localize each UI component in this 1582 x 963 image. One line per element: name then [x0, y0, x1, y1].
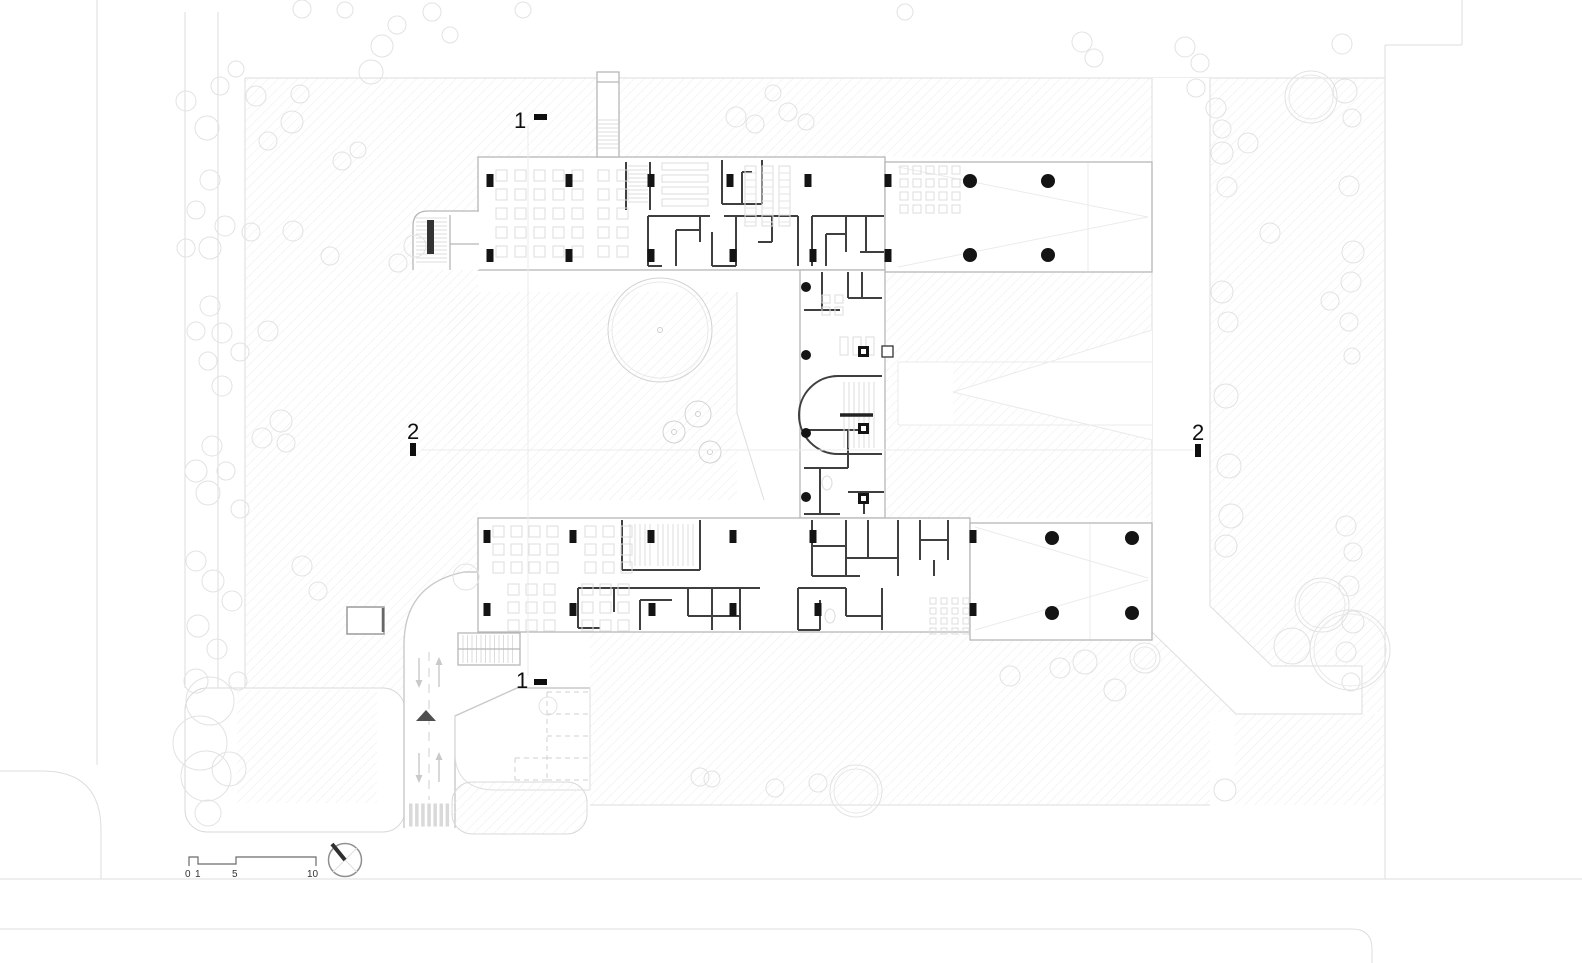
tree-icon — [423, 3, 441, 21]
round-column — [963, 174, 977, 188]
wall-column — [970, 530, 977, 543]
wall-column — [648, 530, 655, 543]
south-exterior-stair — [458, 633, 520, 665]
tree-icon — [897, 4, 913, 20]
tree-icon — [337, 2, 353, 18]
wall-column — [487, 249, 494, 262]
wall-column — [970, 603, 977, 616]
round-column — [963, 248, 977, 262]
round-column — [801, 492, 811, 502]
tree-icon — [293, 0, 311, 18]
tree-icon — [202, 570, 224, 592]
scale-label-5: 5 — [232, 869, 238, 880]
round-column — [1045, 531, 1059, 545]
wall-column — [570, 603, 577, 616]
road-line-south-2 — [0, 929, 1372, 963]
round-column — [1041, 174, 1055, 188]
landscape-island — [452, 782, 587, 834]
scale-bar-line — [189, 857, 316, 866]
wall-column — [805, 174, 812, 187]
tree-icon — [207, 639, 227, 659]
tree-icon — [1214, 779, 1236, 801]
square-column-core — [861, 426, 866, 431]
tree-icon — [200, 296, 220, 316]
wall-column — [815, 603, 822, 616]
wall-column — [566, 249, 573, 262]
wall-column — [730, 249, 737, 262]
wall-column — [484, 530, 491, 543]
tree-icon — [177, 239, 195, 257]
round-column — [1045, 606, 1059, 620]
tree-icon — [195, 116, 219, 140]
square-column-core — [861, 349, 866, 354]
tree-icon — [187, 322, 205, 340]
wall-column — [570, 530, 577, 543]
tree-icon — [229, 672, 247, 690]
scale-label-1: 1 — [195, 869, 201, 880]
south-wing — [478, 518, 970, 632]
tree-icon — [212, 376, 232, 396]
scale-label-0: 0 — [185, 869, 191, 880]
wall-column — [727, 174, 734, 187]
wall-column — [566, 174, 573, 187]
wall-column — [885, 174, 892, 187]
tree-icon — [388, 16, 406, 34]
section-tick-icon — [1195, 444, 1201, 457]
tree-icon — [1072, 32, 1092, 52]
tree-icon — [200, 170, 220, 190]
section-marker-label: 2 — [1192, 420, 1204, 445]
tree-icon — [185, 460, 207, 482]
tree-icon — [187, 615, 209, 637]
section-tick-icon — [534, 679, 547, 685]
tree-icon — [202, 436, 222, 456]
section-marker-label: 1 — [516, 668, 528, 693]
tree-icon — [228, 61, 244, 77]
square-column-core — [861, 496, 866, 501]
tree-icon — [515, 2, 531, 18]
open-square-column — [882, 346, 893, 357]
tree-icon — [196, 481, 220, 505]
tree-icon — [539, 697, 557, 715]
round-column — [1125, 606, 1139, 620]
tree-icon — [186, 551, 206, 571]
section-marker-label: 1 — [514, 108, 526, 133]
south-wing-open-bay — [970, 523, 1152, 640]
tree-icon — [371, 35, 393, 57]
wall-column — [885, 249, 892, 262]
tree-icon — [187, 201, 205, 219]
north-arrow-icon — [329, 844, 362, 877]
wall-column — [730, 530, 737, 543]
site-plan-canvas: 1 1 2 2 0 1 5 10 — [0, 0, 1582, 963]
round-column — [1041, 248, 1055, 262]
wall-column — [649, 603, 656, 616]
round-column — [801, 350, 811, 360]
wall-column — [487, 174, 494, 187]
round-column — [1125, 531, 1139, 545]
section-marker-label: 2 — [407, 419, 419, 444]
kiosk-structure — [347, 607, 384, 634]
tree-icon — [442, 27, 458, 43]
round-column — [801, 282, 811, 292]
section-tick-icon — [534, 114, 547, 120]
north-exterior-stair — [597, 72, 619, 157]
tree-icon — [199, 352, 217, 370]
tree-icon — [1332, 34, 1352, 54]
wall-column — [648, 174, 655, 187]
parking-stalls — [515, 692, 588, 780]
wall-column — [810, 249, 817, 262]
north-wing-open-bay — [885, 162, 1152, 272]
canopy-wall — [427, 220, 434, 254]
tree-icon — [211, 77, 229, 95]
wall-column — [648, 249, 655, 262]
wall-column — [810, 530, 817, 543]
tree-icon — [217, 462, 235, 480]
round-column — [801, 428, 811, 438]
tree-icon — [212, 323, 232, 343]
north-wing — [478, 157, 885, 270]
tree-icon — [222, 591, 242, 611]
tree-icon — [1085, 49, 1103, 67]
road-corner-southwest — [0, 771, 101, 879]
west-entrance-canopy — [413, 211, 479, 270]
section-tick-icon — [410, 443, 416, 456]
scale-label-10: 10 — [307, 869, 319, 880]
tree-icon — [1191, 54, 1209, 72]
tree-icon — [1175, 37, 1195, 57]
wall-column — [484, 603, 491, 616]
tree-icon — [176, 91, 196, 111]
wall-column — [730, 603, 737, 616]
scale-bar: 0 1 5 10 — [185, 857, 319, 880]
